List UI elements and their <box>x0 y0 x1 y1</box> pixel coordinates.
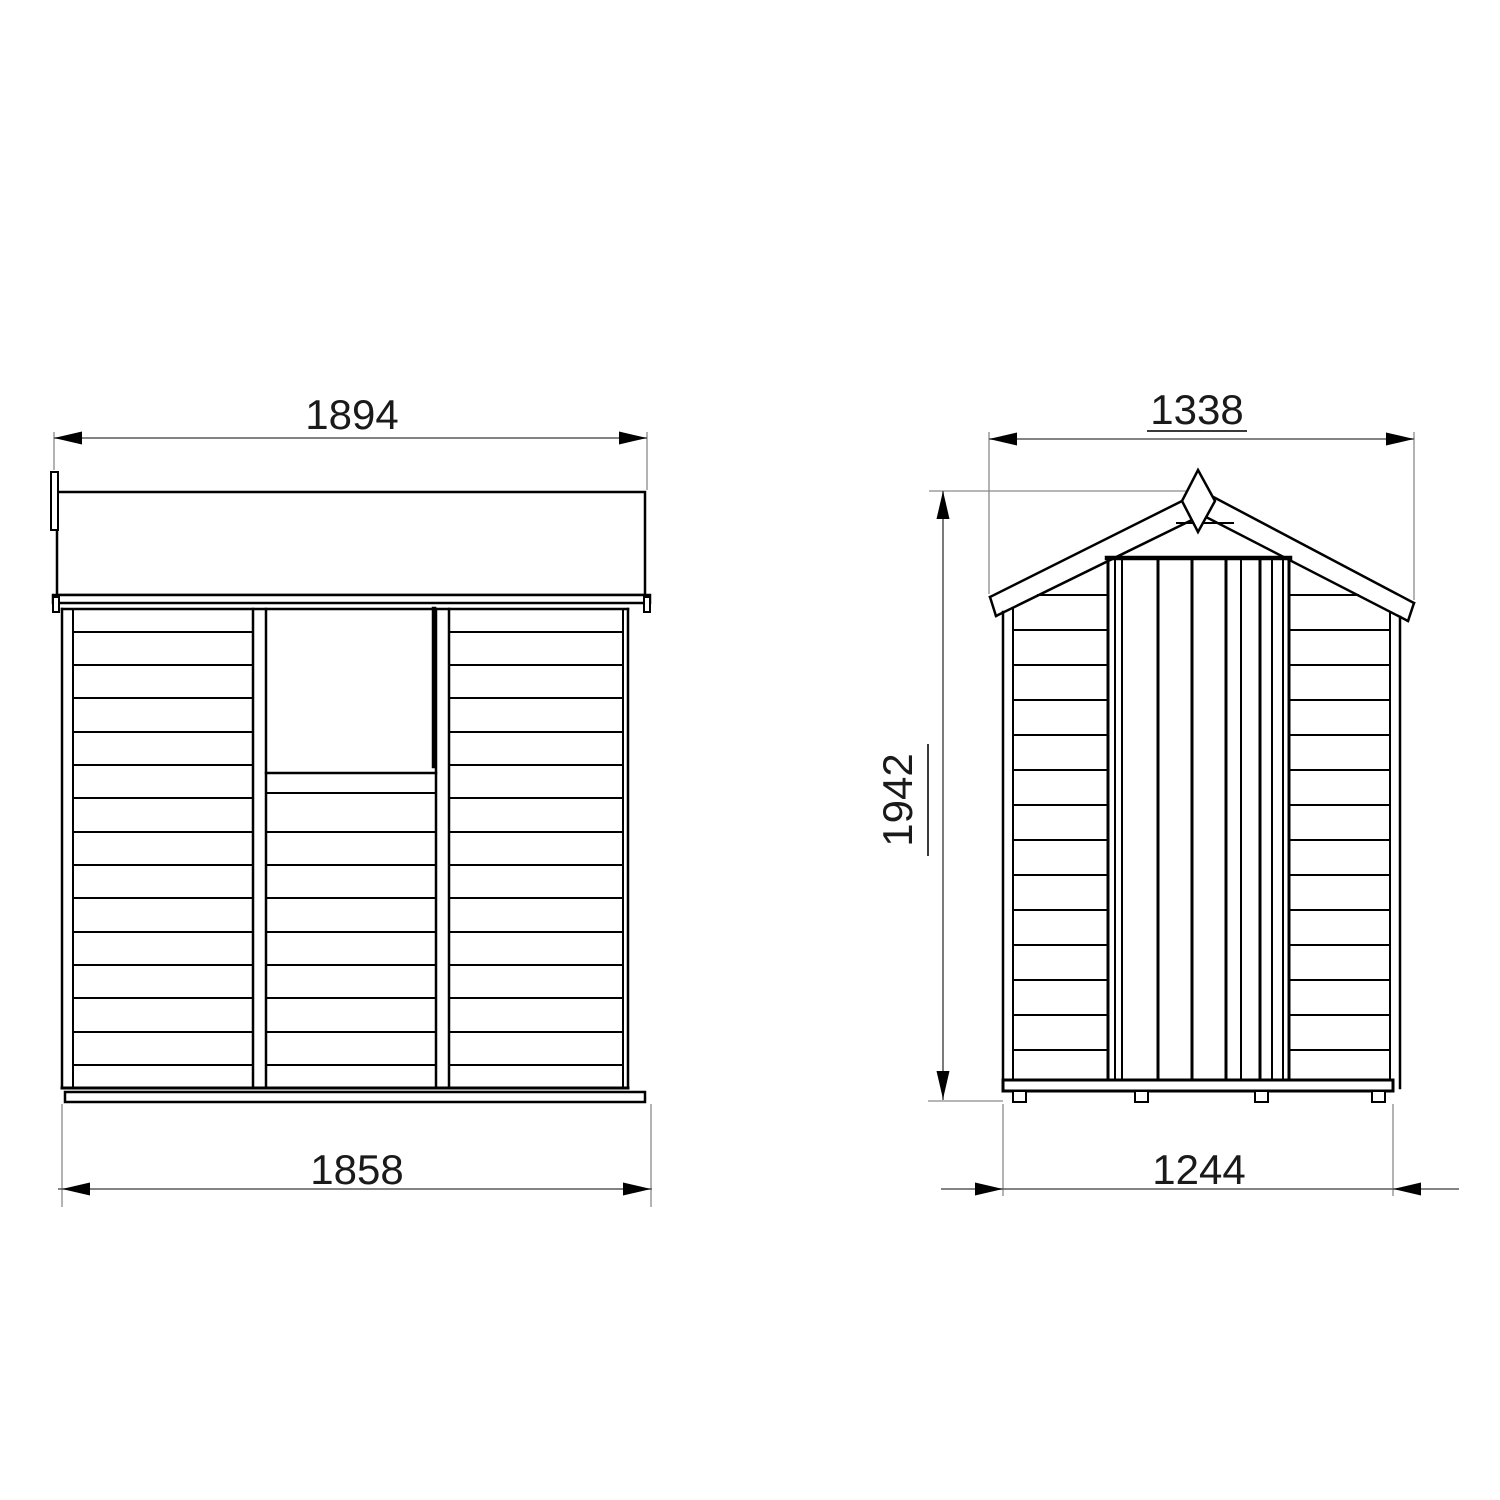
cladding-boards-left-panel <box>73 632 253 1065</box>
base-front <box>1003 1080 1393 1102</box>
arrowhead-left-icon <box>54 432 82 445</box>
dimension-front-base-width: 1244 <box>941 1104 1459 1196</box>
bargeboard-right-cap <box>1408 603 1414 621</box>
window <box>266 609 436 773</box>
dimension-side-top-width: 1894 <box>54 391 647 490</box>
batten-right <box>436 609 449 1088</box>
bargeboard-left-cap <box>990 597 996 616</box>
fascia-end-cap-left <box>53 597 59 612</box>
side-elevation-view: 1894 <box>51 391 652 1207</box>
bargeboard-left-inner <box>996 516 1200 616</box>
roof-panel <box>57 492 645 595</box>
dimension-side-base-width: 1858 <box>58 1104 652 1207</box>
cladding-boards-front-left <box>1013 595 1108 1050</box>
batten-left <box>253 609 266 1088</box>
roof-side <box>51 472 650 612</box>
roof-front <box>990 470 1414 621</box>
bargeboard-left-outer <box>990 491 1202 597</box>
arrowhead-left-icon <box>989 433 1017 446</box>
front-elevation-view: 1338 1942 <box>874 386 1459 1196</box>
fascia-end-cap-right <box>644 597 650 612</box>
dimension-front-ridge-height: 1942 <box>874 491 1198 1101</box>
arrowhead-right-icon <box>623 1183 651 1196</box>
bargeboard-right-outer <box>1202 491 1414 603</box>
arrowhead-left-icon <box>1393 1183 1421 1196</box>
floor-base-front <box>1003 1080 1393 1091</box>
drawing-canvas: 1894 <box>0 0 1500 1500</box>
dimension-label: 1942 <box>874 753 921 846</box>
finial-side-profile <box>51 472 58 530</box>
base-foot <box>1135 1091 1148 1102</box>
cladding-boards-front-right <box>1290 595 1390 1050</box>
base-foot <box>1013 1091 1026 1102</box>
arrowhead-down-icon <box>937 1071 950 1099</box>
arrowhead-right-icon <box>619 432 647 445</box>
dimension-label: 1858 <box>310 1146 403 1193</box>
dimension-label: 1894 <box>305 391 398 438</box>
fascia-board <box>53 595 650 603</box>
bargeboard-right-inner <box>1204 516 1408 621</box>
floor-base-side <box>65 1092 645 1102</box>
shed-technical-drawing: 1894 <box>0 0 1500 1500</box>
arrowhead-right-icon <box>1386 433 1414 446</box>
base-foot <box>1255 1091 1268 1102</box>
cladding-boards-middle-panel <box>266 793 436 1065</box>
arrowhead-right-icon <box>975 1183 1003 1196</box>
dimension-label: 1244 <box>1152 1146 1245 1193</box>
arrowhead-left-icon <box>62 1183 90 1196</box>
wall-side <box>62 609 628 1088</box>
cladding-boards-right-panel <box>449 632 623 1065</box>
door <box>1107 558 1290 1080</box>
base-foot <box>1372 1091 1385 1102</box>
arrowhead-up-icon <box>937 491 950 519</box>
dimension-label: 1338 <box>1150 386 1243 433</box>
